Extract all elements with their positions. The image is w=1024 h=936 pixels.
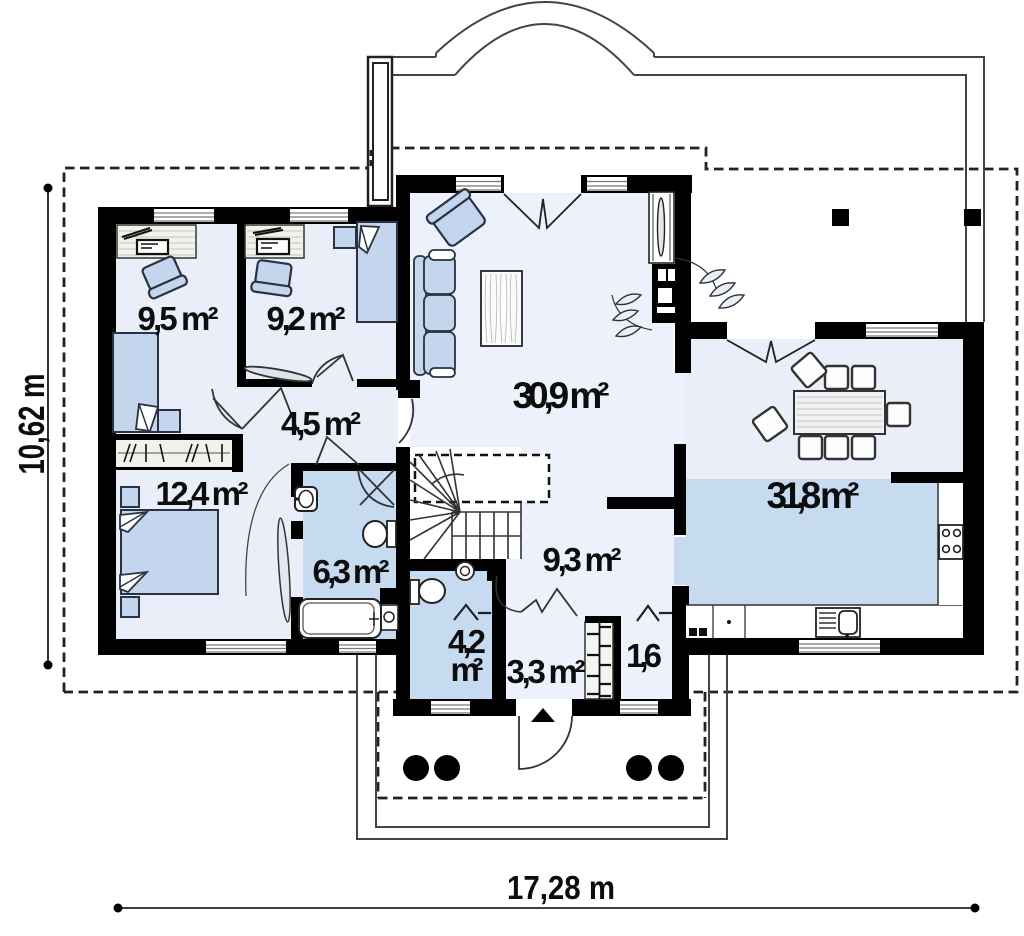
svg-text:12,4 m²: 12,4 m²	[156, 475, 249, 512]
svg-text:9,5 m²: 9,5 m²	[138, 300, 219, 337]
svg-text:30,9 m²: 30,9 m²	[513, 375, 610, 416]
svg-text:m²: m²	[451, 651, 484, 688]
svg-text:17,28 m: 17,28 m	[507, 869, 615, 906]
svg-text:31,8 m²: 31,8 m²	[767, 475, 860, 516]
svg-text:9,2 m²: 9,2 m²	[267, 300, 346, 337]
svg-text:9,3 m²: 9,3 m²	[543, 541, 622, 578]
svg-text:10,62 m: 10,62 m	[11, 374, 52, 475]
svg-text:3,3 m²: 3,3 m²	[507, 653, 586, 690]
svg-text:4,5 m²: 4,5 m²	[281, 405, 361, 442]
svg-text:1,6: 1,6	[626, 637, 662, 674]
svg-text:6,3 m²: 6,3 m²	[313, 553, 390, 590]
